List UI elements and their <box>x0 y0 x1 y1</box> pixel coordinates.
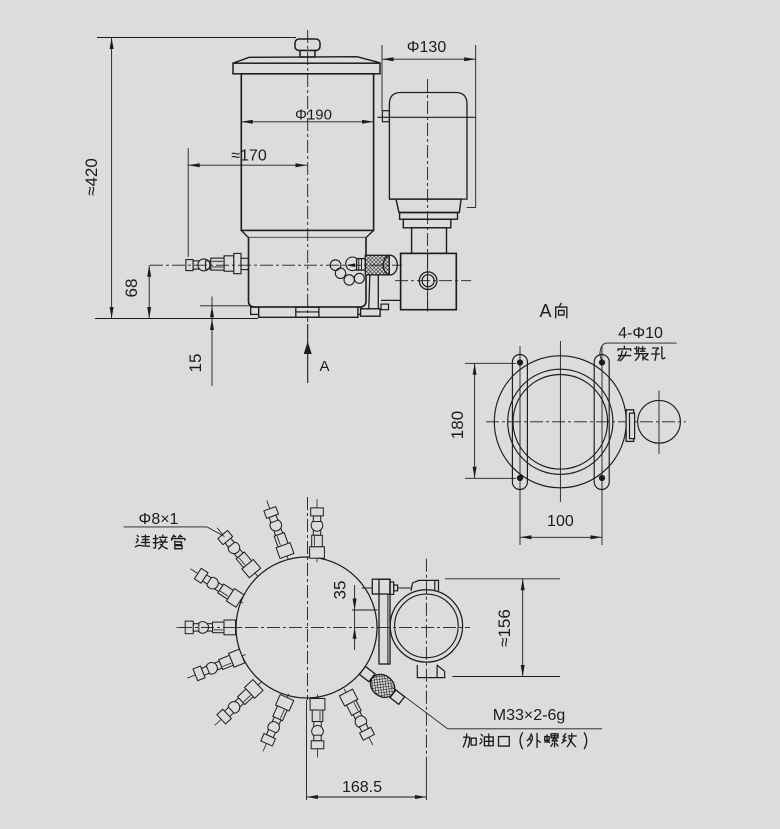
svg-text:68: 68 <box>122 279 141 298</box>
svg-text:4-Φ10: 4-Φ10 <box>618 325 663 342</box>
svg-text:M33×2-6g: M33×2-6g <box>493 707 566 724</box>
svg-text:100: 100 <box>547 513 574 530</box>
svg-text:A: A <box>539 301 551 321</box>
svg-text:≈170: ≈170 <box>231 148 267 165</box>
svg-text:≈156: ≈156 <box>495 609 514 647</box>
svg-text:A: A <box>319 358 329 375</box>
svg-text:180: 180 <box>448 411 467 439</box>
svg-text:≈420: ≈420 <box>82 158 101 196</box>
svg-text:Φ130: Φ130 <box>407 39 447 56</box>
svg-text:15: 15 <box>186 354 205 373</box>
svg-text:Φ190: Φ190 <box>295 107 332 124</box>
svg-text:35: 35 <box>331 581 350 600</box>
svg-text:168.5: 168.5 <box>342 779 382 796</box>
svg-text:Φ8×1: Φ8×1 <box>139 511 179 528</box>
